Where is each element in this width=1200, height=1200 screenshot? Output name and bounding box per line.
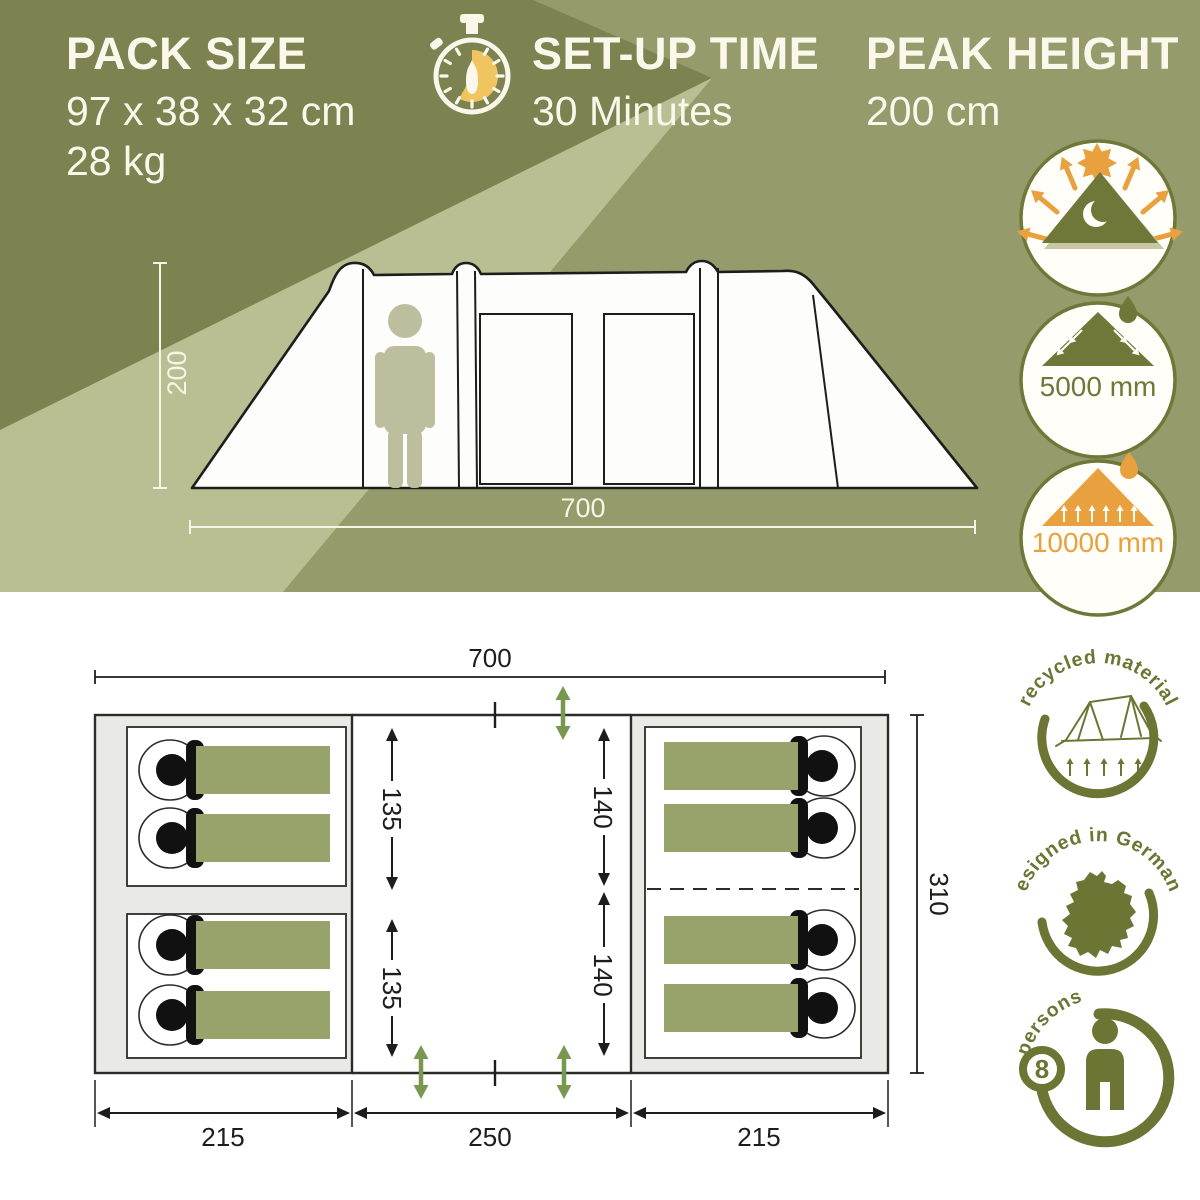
sleeping-bag: [664, 978, 855, 1038]
badge-recycled-material: recycled material: [1014, 646, 1182, 794]
sleeping-bag: [664, 910, 855, 970]
sleeping-bag: [664, 798, 855, 858]
sleeping-bag: [139, 808, 330, 868]
recycle-up-arrows: [1067, 758, 1142, 776]
setup-time-block: SET-UP TIME 30 Minutes: [532, 30, 819, 136]
vestibule-edges: [352, 715, 631, 1073]
cabin-depth-dimensions: [386, 728, 610, 1057]
pack-size-title: PACK SIZE: [66, 30, 355, 78]
right-lower-depth-label: 140: [588, 953, 618, 996]
germany-map-icon: [1062, 871, 1136, 958]
flysheet-water-column-label: 5000 mm: [1040, 371, 1157, 402]
floor-plan: 700: [95, 643, 954, 1152]
sleeping-bag: [139, 985, 330, 1045]
peak-height-value: 200 cm: [866, 86, 1179, 136]
pack-size-dimensions: 97 x 38 x 32 cm: [66, 86, 355, 136]
entrance-arrows: [414, 686, 572, 1099]
width-dimension-label: 700: [560, 493, 605, 523]
person-icon: [1086, 1018, 1124, 1110]
bottom-middle-width-label: 250: [468, 1122, 511, 1152]
setup-time-title: SET-UP TIME: [532, 30, 819, 78]
persons-count: 8: [1035, 1054, 1049, 1084]
pack-size-weight: 28 kg: [66, 136, 355, 186]
peak-height-title: PEAK HEIGHT: [866, 30, 1179, 78]
badge-persons: persons 8: [1012, 985, 1169, 1142]
sleeping-bag: [139, 740, 330, 800]
left-lower-depth-label: 135: [377, 966, 407, 1009]
setup-time-value: 30 Minutes: [532, 86, 819, 136]
bottom-left-width-label: 215: [201, 1122, 244, 1152]
plan-width-label: 700: [468, 643, 511, 673]
groundsheet-water-column-label: 10000 mm: [1032, 527, 1164, 558]
peak-height-block: PEAK HEIGHT 200 cm: [866, 30, 1179, 136]
height-dimension-label: 200: [162, 350, 192, 395]
sleeping-bag: [664, 736, 855, 796]
bottom-dimensions: [95, 1080, 888, 1127]
bottom-right-width-label: 215: [737, 1122, 780, 1152]
entrance-arrow-top: [556, 686, 571, 740]
pack-size-block: PACK SIZE 97 x 38 x 32 cm 28 kg: [66, 30, 355, 186]
plan-depth-label: 310: [924, 872, 954, 915]
left-upper-depth-label: 135: [377, 787, 407, 830]
sleeping-bag: [139, 915, 330, 975]
plan-depth-dimension: [910, 715, 924, 1073]
right-upper-depth-label: 140: [588, 785, 618, 828]
